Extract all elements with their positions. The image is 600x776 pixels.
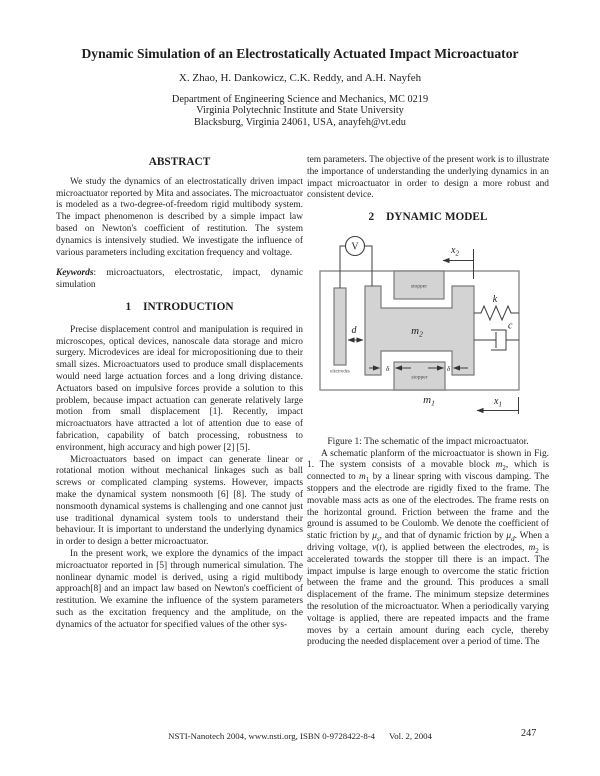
keywords-text: : microactuators, electrostatic, impact,… <box>56 268 303 290</box>
intro-paragraph-3: In the present work, we explore the dyna… <box>56 549 303 632</box>
wire-left <box>340 246 346 288</box>
gap-d-label: d <box>352 325 358 336</box>
paper-header: Dynamic Simulation of an Electrostatical… <box>0 46 600 129</box>
section-heading-dynamic-model: 2DYNAMIC MODEL <box>307 212 549 224</box>
section-number-2: 2 <box>368 211 374 223</box>
section-heading-introduction: 1INTRODUCTION <box>56 302 303 314</box>
footer-line: NSTI-Nanotech 2004, www.nsti.org, ISBN 0… <box>25 731 575 741</box>
delta-right-label: δ <box>447 365 451 373</box>
keywords-label: Keywords <box>56 268 94 278</box>
continuation-paragraph: tem parameters. The objective of the pre… <box>307 155 549 202</box>
m1-label: m1 <box>423 394 435 408</box>
x1-label: x1 <box>493 396 502 409</box>
right-column: tem parameters. The objective of the pre… <box>307 155 549 649</box>
electrodes-label: electrodes <box>330 369 350 374</box>
affiliation-line-1: Department of Engineering Science and Me… <box>0 94 600 106</box>
figure-schematic: V x2 k c d m2 <box>307 235 549 427</box>
paper-page: Dynamic Simulation of an Electrostatical… <box>0 0 600 776</box>
section-title-dynamic-model: DYNAMIC MODEL <box>386 211 487 223</box>
authors-line: X. Zhao, H. Dankowicz, C.K. Reddy, and A… <box>0 72 600 84</box>
stopper-top-label: stopper <box>411 283 427 289</box>
intro-paragraph-2: Microactuators based on impact can gener… <box>56 455 303 549</box>
affiliation-line-3: Blacksburg, Virginia 24061, USA, anayfeh… <box>0 117 600 129</box>
footer-volume: Vol. 2, 2004 <box>389 731 432 741</box>
stopper-bottom-label: stopper <box>411 374 427 380</box>
affiliation-block: Department of Engineering Science and Me… <box>0 94 600 129</box>
section-title-introduction: INTRODUCTION <box>143 301 233 313</box>
abstract-body: We study the dynamics of an electrostati… <box>56 177 303 260</box>
damper-c-label: c <box>508 320 513 331</box>
left-column: ABSTRACT We study the dynamics of an ele… <box>56 155 303 631</box>
page-number: 247 <box>521 728 536 739</box>
intro-paragraph-1: Precise displacement control and manipul… <box>56 325 303 455</box>
abstract-heading: ABSTRACT <box>56 157 303 169</box>
model-paragraph: A schematic planform of the microactuato… <box>307 449 549 650</box>
figure-1: V x2 k c d m2 <box>307 235 549 449</box>
electrode-bar <box>334 288 346 365</box>
figure-caption: Figure 1: The schematic of the impact mi… <box>307 437 549 449</box>
delta-left-label: δ <box>386 365 390 373</box>
keywords-line: Keywords: microactuators, electrostatic,… <box>56 268 303 292</box>
paper-title: Dynamic Simulation of an Electrostatical… <box>80 46 520 63</box>
voltage-source-label: V <box>351 241 359 252</box>
footer-conference: NSTI-Nanotech 2004, www.nsti.org, ISBN 0… <box>168 731 375 741</box>
section-number-1: 1 <box>125 301 131 313</box>
wire-right <box>365 246 373 286</box>
spring-k <box>474 306 519 320</box>
spring-k-label: k <box>493 294 498 305</box>
x2-label: x2 <box>450 245 459 258</box>
affiliation-line-2: Virginia Polytechnic Institute and State… <box>0 105 600 117</box>
